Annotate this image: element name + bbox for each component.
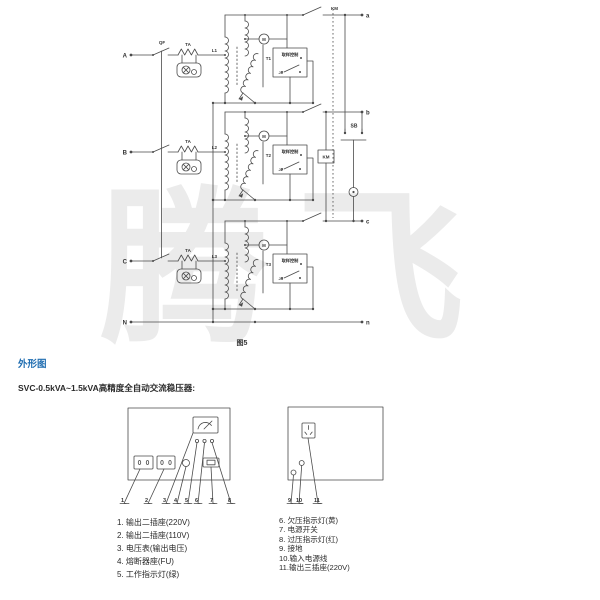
phase-c-input-label: C: [123, 260, 128, 266]
outline-drawings: 1 2 3 4 5 6 7 8 9 10 11: [0, 400, 600, 515]
work-light-icon: [195, 439, 198, 442]
legend-item-4: 4. 熔断器座(FU): [117, 555, 190, 568]
controller-label-b: 取样控制: [282, 148, 299, 155]
controller-label-c: 取样控制: [282, 257, 299, 264]
transformer-label-c: T3: [266, 262, 272, 267]
legend-item-3: 3. 电压表(输出电压): [117, 542, 190, 555]
controller-label-a: 取样控制: [282, 51, 299, 58]
coil-label-b: L2: [212, 145, 218, 150]
ct-label-b: TA: [185, 139, 191, 144]
relay-label-a: J1: [279, 70, 284, 75]
phase-b-input-label: B: [123, 151, 128, 157]
legend-item-10: 10.输入电源线: [279, 554, 350, 563]
phase-b-output-label: b: [366, 111, 370, 117]
callout-10: 10: [296, 498, 302, 504]
relay-label-b: J2: [279, 167, 284, 172]
neutral-out-label: n: [366, 321, 370, 327]
phase-a-block: [130, 7, 364, 104]
legend-item-2: 2. 输出二插座(110V): [117, 529, 190, 542]
figure-caption: 图5: [237, 338, 248, 347]
circuit-diagram: A a QF TA L1 T1 M 取样控制 J1 KM B b TA L2 T…: [0, 0, 600, 355]
transformer-label-a: T1: [266, 56, 272, 61]
section-heading: 外形图: [18, 356, 47, 370]
legend-item-1: 1. 输出二插座(220V): [117, 516, 190, 529]
button-label: SB: [351, 124, 358, 130]
neutral-in-label: N: [123, 321, 127, 327]
voltmeter-icon: [193, 417, 218, 433]
overvoltage-light-icon: [210, 439, 213, 442]
callout-6: 6: [195, 498, 198, 504]
fuse-holder-icon: [183, 460, 190, 467]
callout-3: 3: [163, 498, 166, 504]
socket-220v-icon: [134, 456, 153, 469]
callout-2: 2: [145, 498, 148, 504]
socket-3pin-icon: [302, 423, 315, 438]
legend-item-7: 7. 电源开关: [279, 525, 350, 534]
motor-label-b: M: [262, 134, 266, 139]
undervoltage-light-icon: [203, 439, 206, 442]
callout-9: 9: [288, 498, 291, 504]
rear-panel-drawing: [287, 407, 383, 504]
callout-1: 1: [121, 498, 124, 504]
legend-left-column: 1. 输出二插座(220V) 2. 输出二插座(110V) 3. 电压表(输出电…: [117, 516, 190, 581]
callout-5: 5: [185, 498, 188, 504]
phase-a-input-label: A: [123, 54, 128, 60]
contactor-contact-label: KM: [331, 6, 338, 11]
motor-label-c: M: [262, 243, 266, 248]
legend-item-9: 9. 接地: [279, 544, 350, 553]
callout-11: 11: [314, 498, 320, 504]
ct-label-a: TA: [185, 42, 191, 47]
power-cord-icon: [299, 461, 304, 466]
callout-7: 7: [210, 498, 213, 504]
socket-110v-icon: [157, 456, 175, 469]
legend-right-column: 6. 欠压指示灯(黄) 7. 电源开关 8. 过压指示灯(红) 9. 接地 10…: [279, 516, 350, 572]
control-branch: [318, 14, 366, 222]
power-switch-icon: [203, 458, 219, 467]
ct-label-c: TA: [185, 248, 191, 253]
legend-item-8: 8. 过压指示灯(红): [279, 535, 350, 544]
phase-b-block: [130, 104, 364, 201]
relay-label-c: J3: [279, 276, 284, 281]
phase-c-output-label: c: [366, 220, 370, 226]
coil-label-a: L1: [212, 48, 218, 53]
transformer-label-b: T2: [266, 153, 272, 158]
legend-item-6: 6. 欠压指示灯(黄): [279, 516, 350, 525]
breaker-label: QF: [159, 40, 166, 45]
motor-label-a: M: [262, 37, 266, 42]
coil-label-c: L3: [212, 254, 218, 259]
section-subtitle: SVC-0.5kVA~1.5kVA高精度全自动交流稳压器:: [18, 382, 195, 394]
ground-terminal-icon: [291, 470, 296, 475]
legend-item-5: 5. 工作指示灯(绿): [117, 568, 190, 581]
phase-a-output-label: a: [366, 14, 370, 20]
legend-item-11: 11.输出三插座(220V): [279, 563, 350, 572]
callout-8: 8: [228, 498, 231, 504]
phase-c-block: [130, 213, 364, 310]
front-panel-drawing: [120, 408, 235, 504]
contactor-coil-label: KM: [323, 155, 330, 160]
